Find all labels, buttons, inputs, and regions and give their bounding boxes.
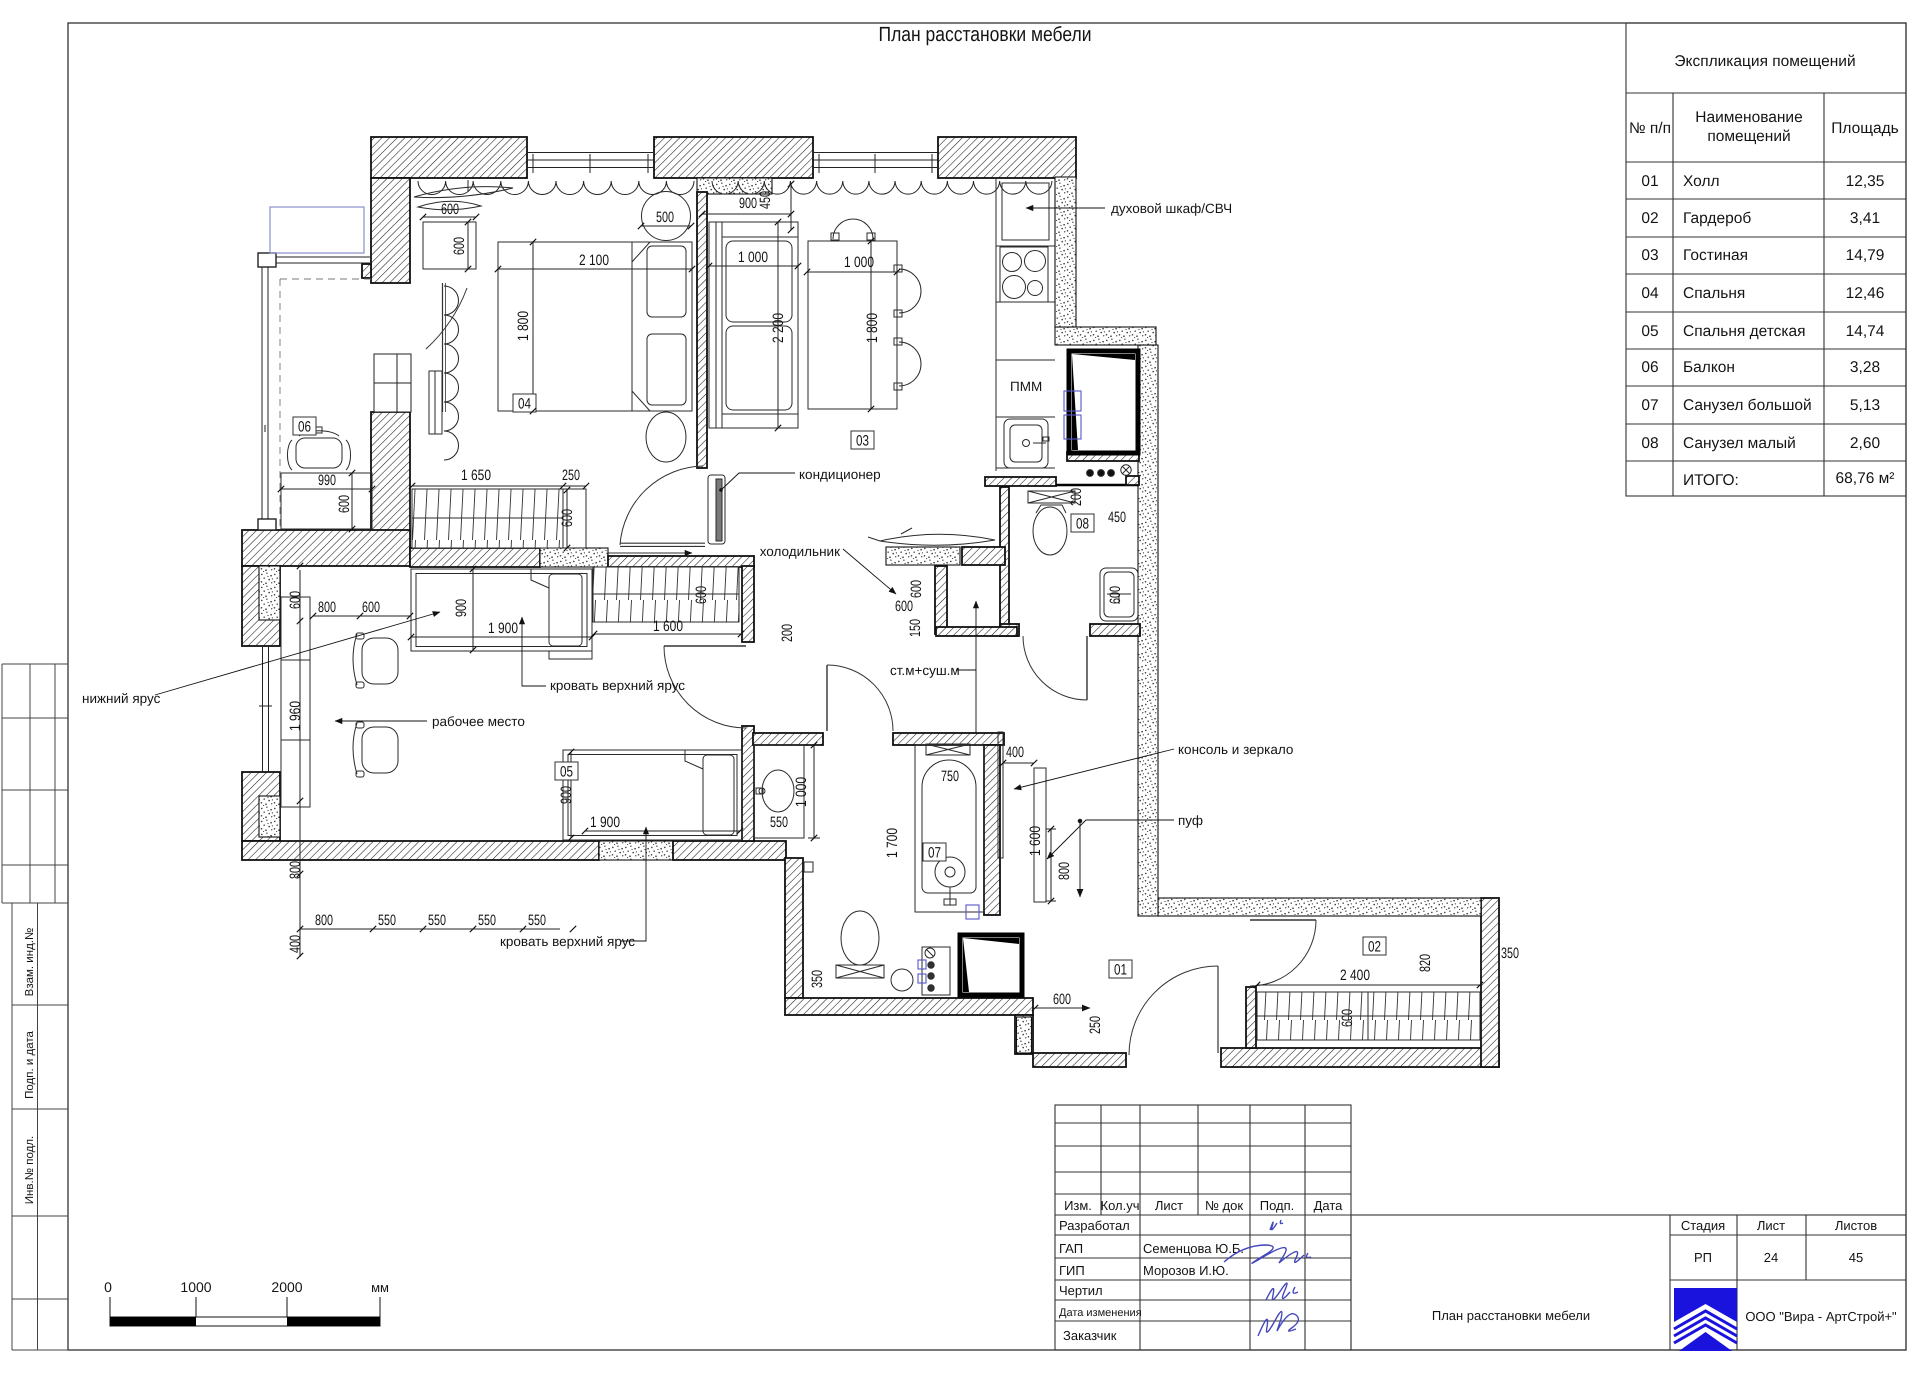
svg-text:рабочее место: рабочее место [432, 714, 525, 729]
svg-text:консоль и зеркало: консоль и зеркало [1178, 742, 1293, 757]
svg-text:РП: РП [1694, 1250, 1712, 1265]
svg-text:06: 06 [1641, 359, 1658, 376]
svg-text:Санузел большой: Санузел большой [1683, 397, 1812, 414]
svg-text:600: 600 [451, 237, 468, 255]
svg-text:Наименование: Наименование [1695, 109, 1802, 126]
svg-text:холодильник: холодильник [760, 544, 840, 559]
svg-text:1 650: 1 650 [461, 467, 491, 484]
svg-text:400: 400 [287, 935, 304, 953]
svg-text:1 600: 1 600 [653, 618, 683, 635]
svg-text:Морозов И.Ю.: Морозов И.Ю. [1143, 1263, 1229, 1278]
svg-text:800: 800 [1056, 862, 1073, 880]
svg-text:800: 800 [315, 912, 333, 929]
svg-text:1 000: 1 000 [738, 249, 768, 266]
svg-text:1 000: 1 000 [793, 777, 810, 807]
svg-text:мм: мм [371, 1280, 389, 1295]
svg-text:900: 900 [453, 599, 470, 617]
svg-text:Спальня детская: Спальня детская [1683, 323, 1806, 340]
svg-text:Инв.№ подл.: Инв.№ подл. [24, 1136, 36, 1204]
svg-text:550: 550 [378, 912, 396, 929]
svg-text:Дата изменения: Дата изменения [1059, 1307, 1142, 1319]
svg-text:05: 05 [1641, 323, 1658, 340]
svg-text:14,79: 14,79 [1846, 247, 1885, 264]
svg-text:06: 06 [298, 419, 311, 436]
svg-text:550: 550 [428, 912, 446, 929]
svg-text:Спальня: Спальня [1683, 285, 1745, 302]
svg-text:Подп. и дата: Подп. и дата [24, 1031, 36, 1099]
svg-text:08: 08 [1076, 516, 1089, 533]
svg-text:1 800: 1 800 [864, 313, 881, 343]
svg-text:Балкон: Балкон [1683, 359, 1735, 376]
svg-text:Листов: Листов [1835, 1218, 1877, 1233]
svg-text:500: 500 [656, 209, 674, 226]
svg-text:Площадь: Площадь [1831, 120, 1898, 137]
svg-text:2,60: 2,60 [1850, 435, 1881, 452]
svg-text:02: 02 [1641, 210, 1658, 227]
svg-text:03: 03 [856, 433, 869, 450]
svg-text:Разработал: Разработал [1059, 1218, 1130, 1233]
svg-text:Чертил: Чертил [1059, 1283, 1103, 1298]
svg-text:1 000: 1 000 [844, 254, 874, 271]
svg-text:450: 450 [1108, 509, 1126, 526]
svg-text:3,28: 3,28 [1850, 359, 1880, 376]
svg-text:Кол.уч: Кол.уч [1101, 1198, 1140, 1213]
svg-text:600: 600 [895, 598, 913, 615]
svg-text:0: 0 [104, 1279, 112, 1295]
svg-text:ИТОГО:: ИТОГО: [1683, 472, 1739, 489]
svg-text:07: 07 [1641, 397, 1658, 414]
svg-text:3,41: 3,41 [1850, 210, 1880, 227]
svg-text:1000: 1000 [180, 1279, 211, 1295]
svg-text:Гардероб: Гардероб [1683, 210, 1751, 227]
svg-text:ГИП: ГИП [1059, 1263, 1085, 1278]
svg-text:01: 01 [1114, 962, 1127, 979]
svg-text:№ док: № док [1205, 1198, 1243, 1213]
svg-text:Экспликация помещений: Экспликация помещений [1674, 53, 1855, 70]
svg-text:600: 600 [1053, 991, 1071, 1008]
svg-text:200: 200 [1068, 488, 1085, 506]
svg-text:12,46: 12,46 [1846, 285, 1885, 302]
svg-text:Взам. инд.№: Взам. инд.№ [24, 928, 36, 997]
svg-text:пуф: пуф [1178, 813, 1203, 828]
svg-text:250: 250 [1087, 1016, 1104, 1034]
svg-text:Стадия: Стадия [1681, 1218, 1725, 1233]
svg-text:900: 900 [558, 786, 575, 804]
svg-text:990: 990 [318, 472, 336, 489]
svg-text:План расстановки мебели: План расстановки мебели [1432, 1308, 1590, 1323]
svg-text:200: 200 [779, 624, 796, 642]
svg-text:1 900: 1 900 [488, 620, 518, 637]
svg-text:04: 04 [518, 396, 531, 413]
svg-text:Лист: Лист [1757, 1218, 1785, 1233]
svg-text:550: 550 [528, 912, 546, 929]
svg-text:кровать верхний ярус: кровать верхний ярус [550, 678, 685, 693]
svg-text:24: 24 [1764, 1250, 1778, 1265]
svg-text:68,76 м²: 68,76 м² [1836, 470, 1895, 487]
svg-text:1 800: 1 800 [515, 311, 532, 341]
svg-text:1 960: 1 960 [287, 701, 304, 731]
svg-text:04: 04 [1641, 285, 1659, 302]
svg-text:600: 600 [559, 509, 576, 527]
svg-text:Гостиная: Гостиная [1683, 247, 1748, 264]
svg-text:800: 800 [318, 599, 336, 616]
svg-text:800: 800 [287, 861, 304, 879]
svg-text:1 900: 1 900 [590, 814, 620, 831]
svg-text:600: 600 [336, 495, 353, 513]
svg-text:2 100: 2 100 [579, 252, 609, 269]
svg-text:ПММ: ПММ [1010, 379, 1042, 394]
svg-text:2 400: 2 400 [1340, 967, 1370, 984]
svg-text:550: 550 [478, 912, 496, 929]
svg-text:600: 600 [693, 586, 710, 604]
svg-text:600: 600 [362, 599, 380, 616]
svg-text:350: 350 [809, 970, 826, 988]
svg-text:450: 450 [757, 191, 774, 209]
svg-text:150: 150 [907, 619, 924, 637]
svg-text:01: 01 [1641, 173, 1658, 190]
svg-text:550: 550 [770, 814, 788, 831]
svg-text:Дата: Дата [1314, 1198, 1344, 1213]
svg-text:ГАП: ГАП [1059, 1241, 1083, 1256]
svg-text:кондиционер: кондиционер [799, 467, 881, 482]
svg-text:№ п/п: № п/п [1629, 120, 1671, 137]
svg-text:кровать верхний ярус: кровать верхний ярус [500, 934, 635, 949]
svg-text:600: 600 [1339, 1009, 1356, 1027]
svg-text:02: 02 [1368, 939, 1381, 956]
svg-text:Подп.: Подп. [1260, 1198, 1295, 1213]
svg-text:14,74: 14,74 [1846, 323, 1885, 340]
svg-text:Санузел малый: Санузел малый [1683, 435, 1796, 452]
svg-text:600: 600 [287, 591, 304, 609]
svg-text:400: 400 [1006, 744, 1024, 761]
svg-text:План расстановки мебели: План расстановки мебели [879, 23, 1092, 46]
svg-text:45: 45 [1849, 1250, 1863, 1265]
svg-text:нижний ярус: нижний ярус [82, 691, 161, 706]
svg-text:1 600: 1 600 [1027, 826, 1044, 856]
svg-text:05: 05 [560, 764, 573, 781]
svg-text:Лист: Лист [1155, 1198, 1183, 1213]
svg-text:ст.м+суш.м: ст.м+суш.м [890, 663, 960, 678]
svg-text:08: 08 [1641, 435, 1658, 452]
svg-text:помещений: помещений [1707, 128, 1790, 145]
svg-text:Семенцова Ю.Б.: Семенцова Ю.Б. [1143, 1241, 1244, 1256]
svg-text:03: 03 [1641, 247, 1658, 264]
svg-text:5,13: 5,13 [1850, 397, 1880, 414]
svg-text:духовой шкаф/СВЧ: духовой шкаф/СВЧ [1111, 201, 1232, 216]
svg-text:750: 750 [941, 768, 959, 785]
svg-text:ООО "Вира - АртСтрой+": ООО "Вира - АртСтрой+" [1745, 1309, 1897, 1324]
svg-text:250: 250 [562, 467, 580, 484]
svg-text:350: 350 [1501, 945, 1519, 962]
svg-text:12,35: 12,35 [1846, 173, 1885, 190]
svg-text:600: 600 [908, 580, 925, 598]
svg-text:Изм.: Изм. [1064, 1198, 1092, 1213]
svg-text:2000: 2000 [271, 1279, 302, 1295]
svg-text:1 700: 1 700 [884, 828, 901, 858]
svg-text:2 200: 2 200 [770, 313, 787, 343]
svg-text:Холл: Холл [1683, 173, 1720, 190]
svg-text:600: 600 [441, 201, 459, 218]
svg-text:820: 820 [1417, 954, 1434, 972]
svg-text:900: 900 [739, 195, 757, 212]
svg-text:Заказчик: Заказчик [1063, 1328, 1117, 1343]
svg-text:600: 600 [1107, 586, 1124, 604]
svg-text:07: 07 [928, 845, 941, 862]
